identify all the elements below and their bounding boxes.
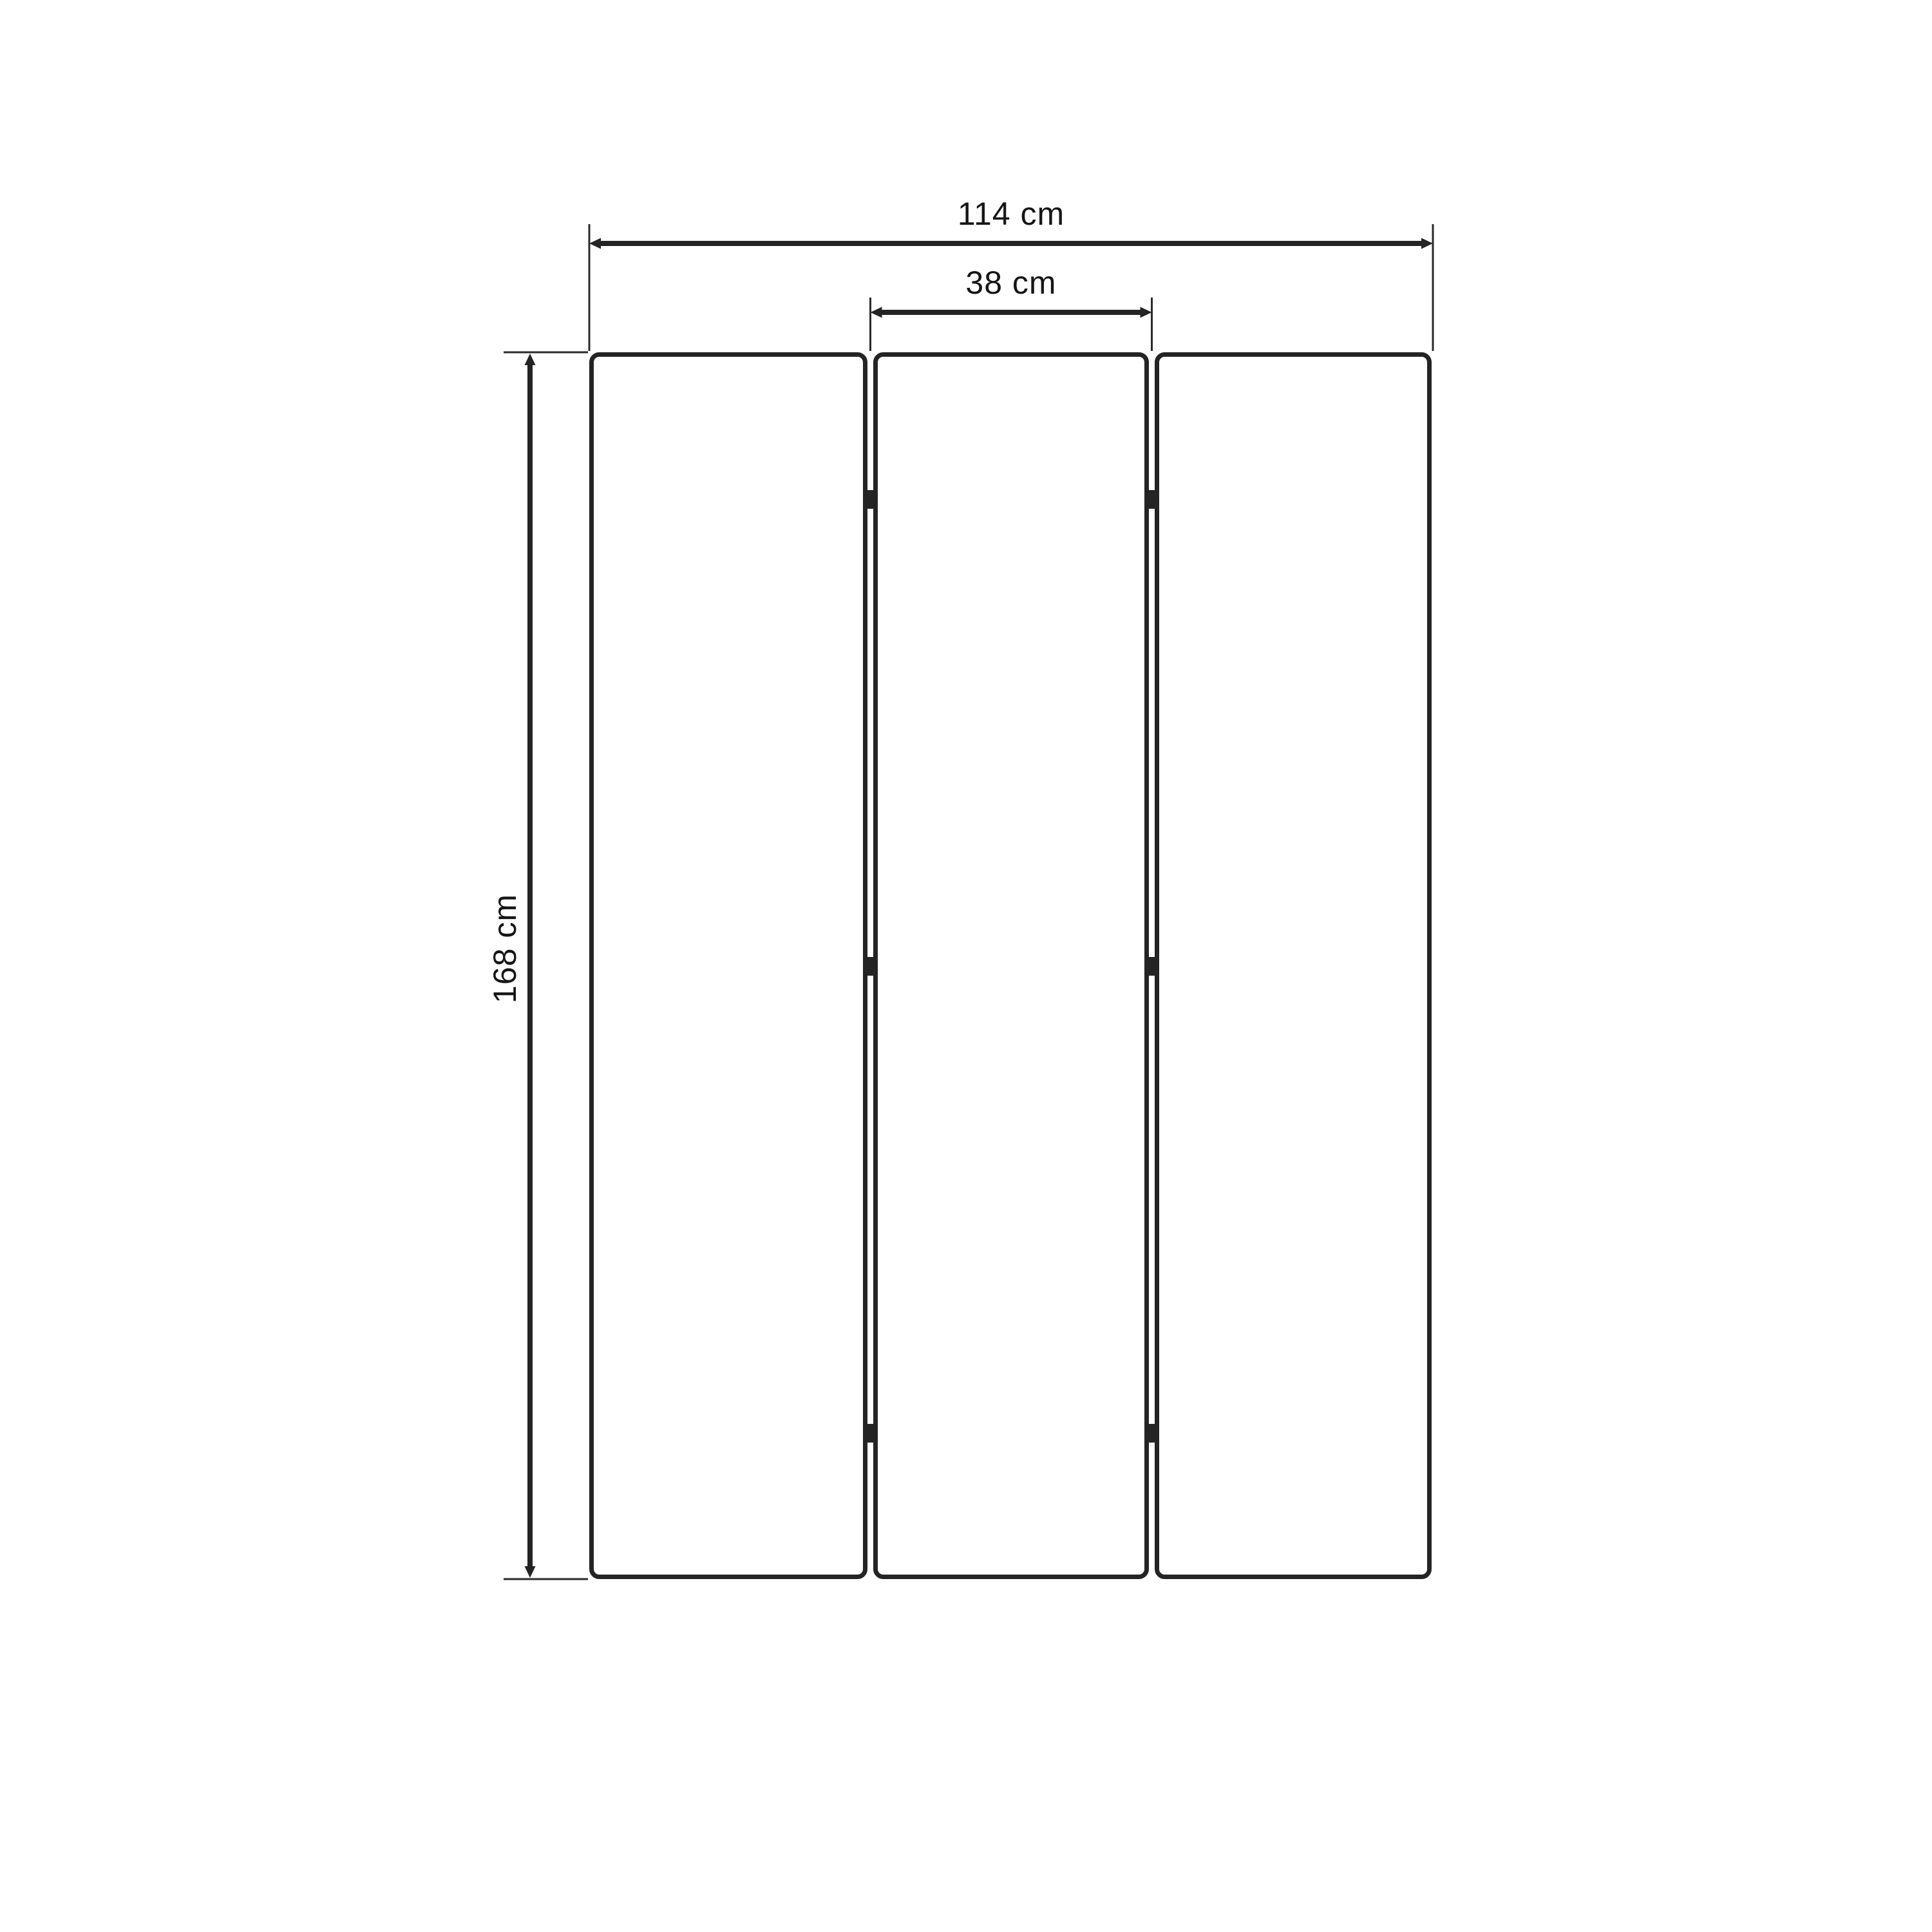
panel-width-label: 38 cm <box>965 265 1056 301</box>
hinge-left-top <box>867 490 875 509</box>
panel-left <box>592 355 866 1577</box>
panels <box>592 355 1430 1577</box>
hinge-right-top <box>1148 490 1156 509</box>
hinge-right-bottom <box>1148 1424 1156 1443</box>
arrowhead-bottom-icon <box>525 1566 536 1578</box>
arrowhead-right-icon <box>1421 238 1433 249</box>
dimension-panel-width: 38 cm <box>871 265 1152 351</box>
overall-width-label: 114 cm <box>958 196 1065 232</box>
panel-middle <box>876 355 1147 1577</box>
technical-drawing: 114 cm 38 cm 168 cm <box>0 0 1932 1932</box>
hinge-right-middle <box>1148 957 1156 976</box>
hinge-left-bottom <box>867 1424 875 1443</box>
arrowhead-left-icon <box>589 238 601 249</box>
arrowhead-top-icon <box>525 354 536 365</box>
overall-height-label: 168 cm <box>487 894 523 1003</box>
arrowhead-left-icon <box>871 307 882 318</box>
arrowhead-right-icon <box>1141 307 1152 318</box>
hinge-left-middle <box>867 957 875 976</box>
page: { "drawing": { "background": "#ffffff", … <box>0 0 1932 1932</box>
dimension-overall-height: 168 cm <box>487 352 588 1579</box>
panel-right <box>1157 355 1430 1577</box>
